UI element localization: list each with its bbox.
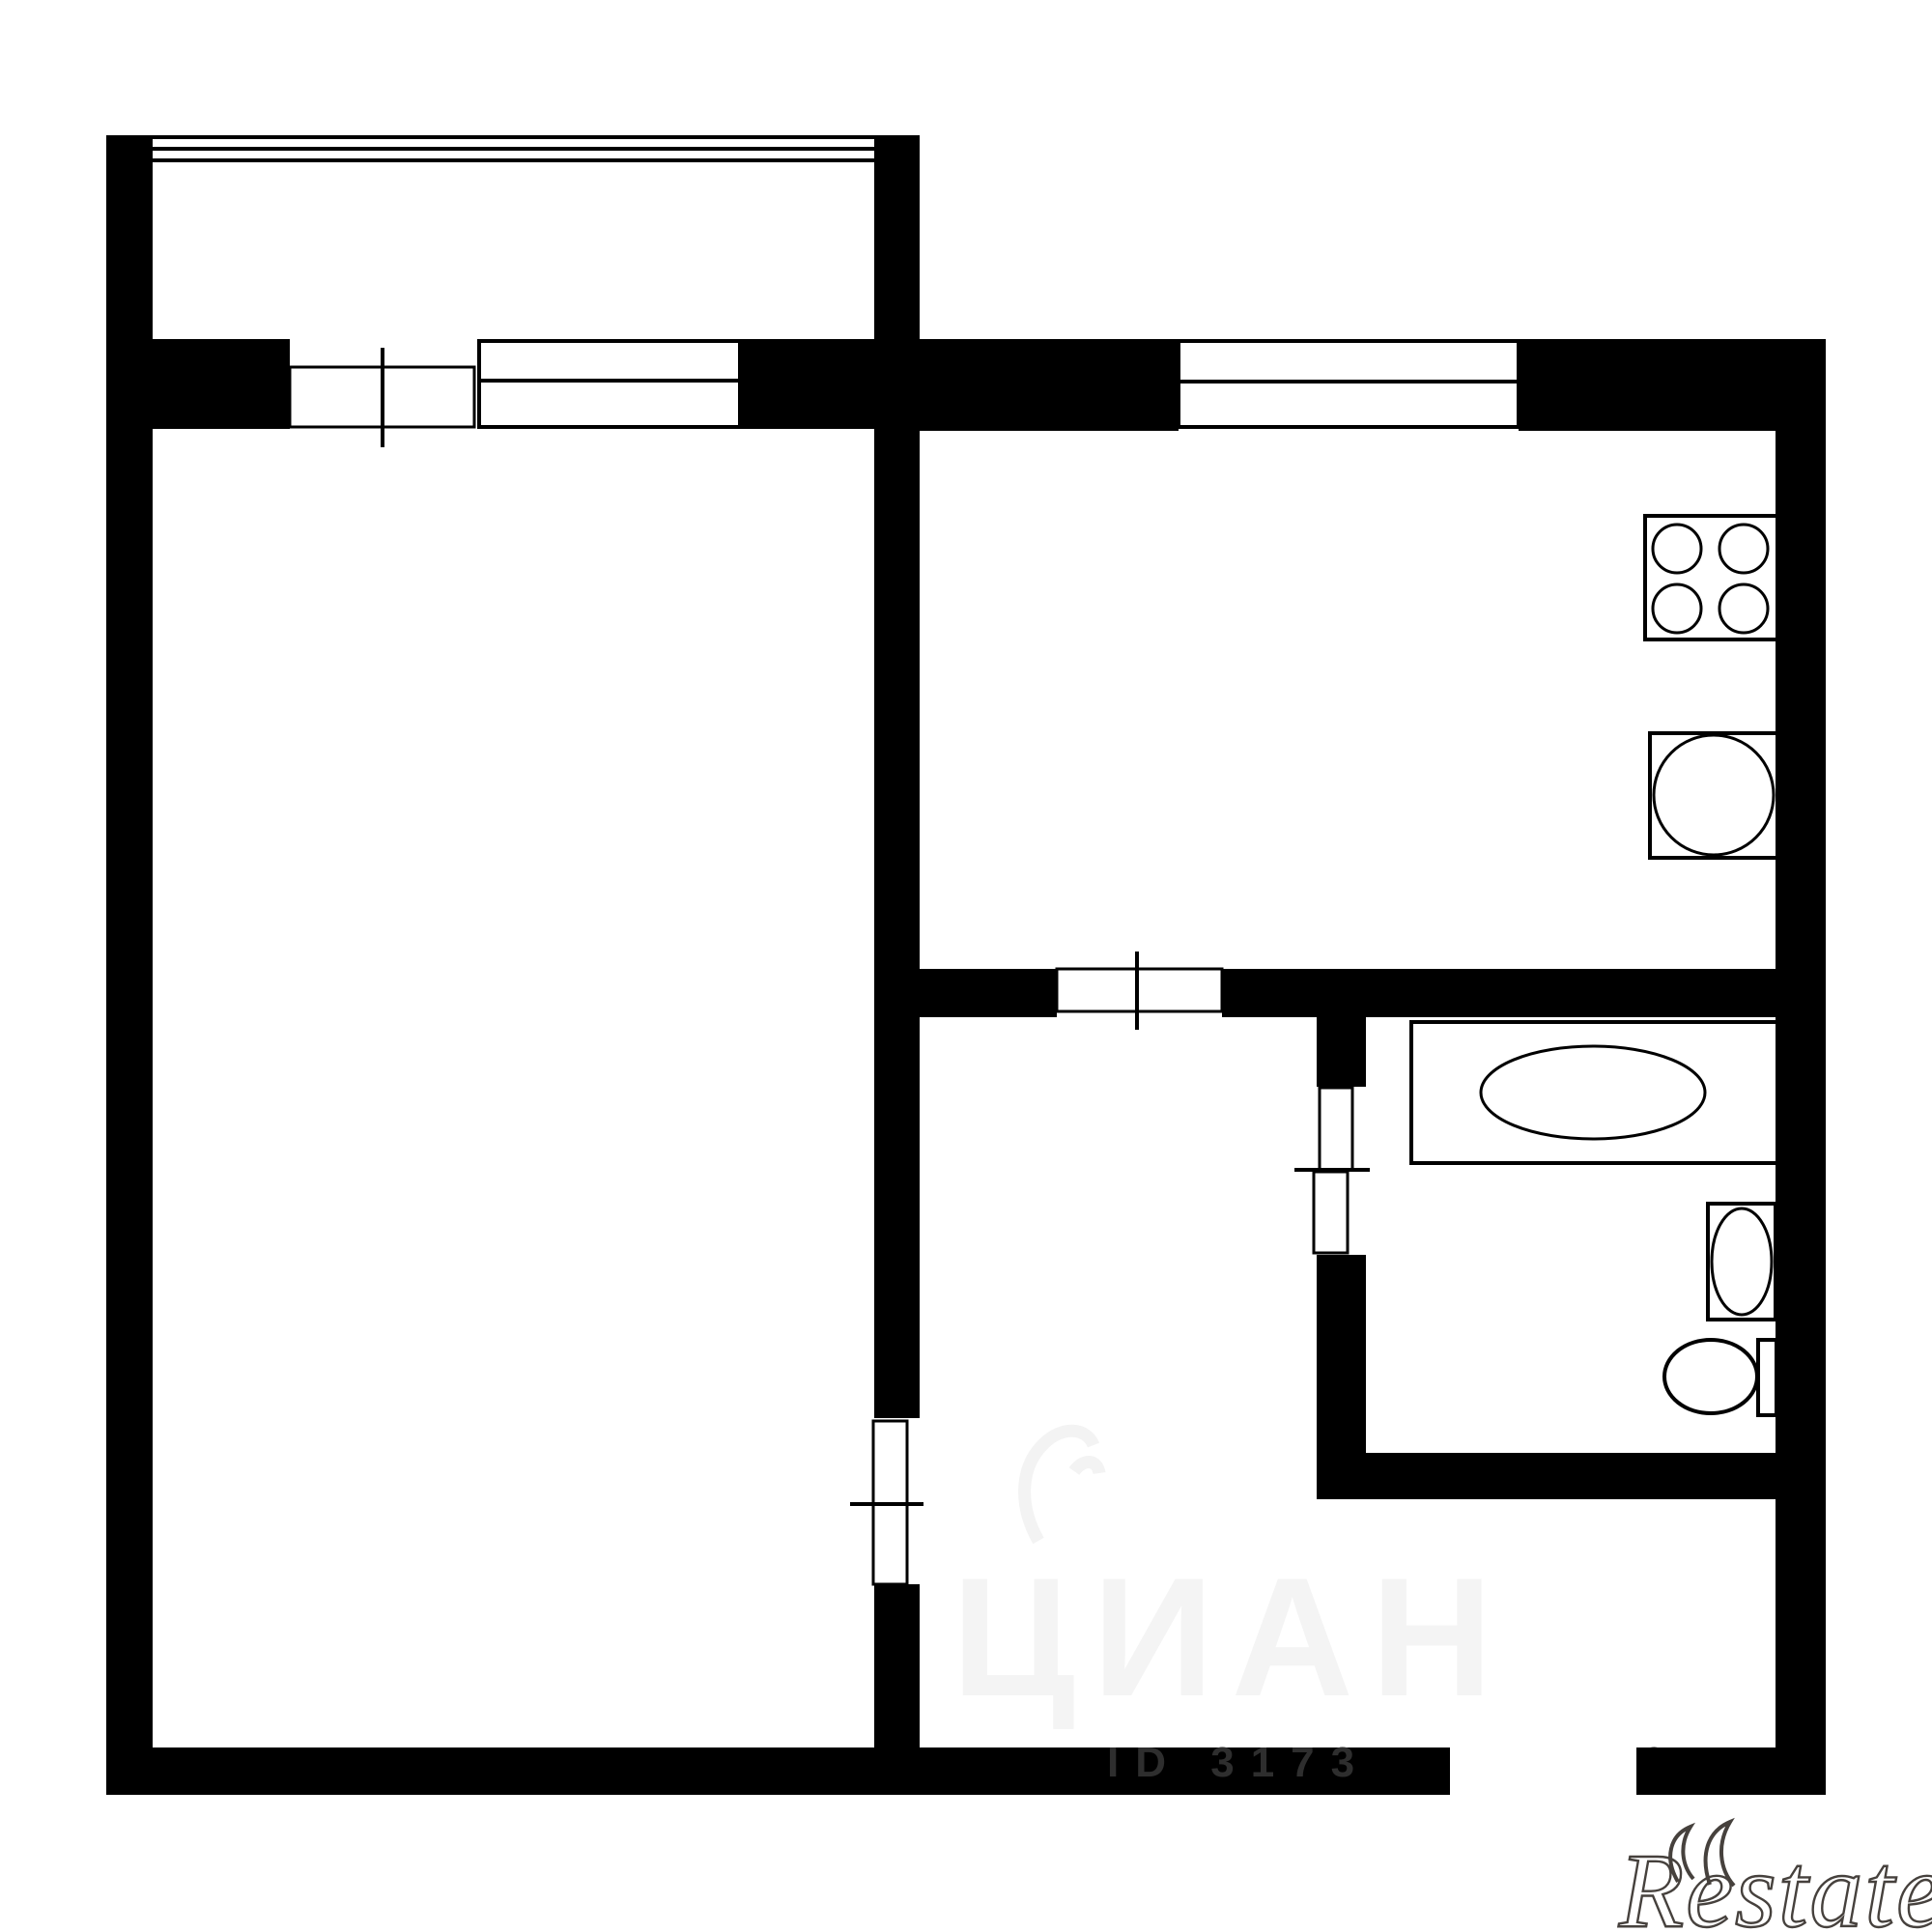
svg-text:Restate: Restate — [1618, 1832, 1932, 1932]
svg-text:ID 3173: ID 3173 — [1107, 1739, 1371, 1786]
svg-text:ЦИАН: ЦИАН — [952, 1544, 1510, 1732]
